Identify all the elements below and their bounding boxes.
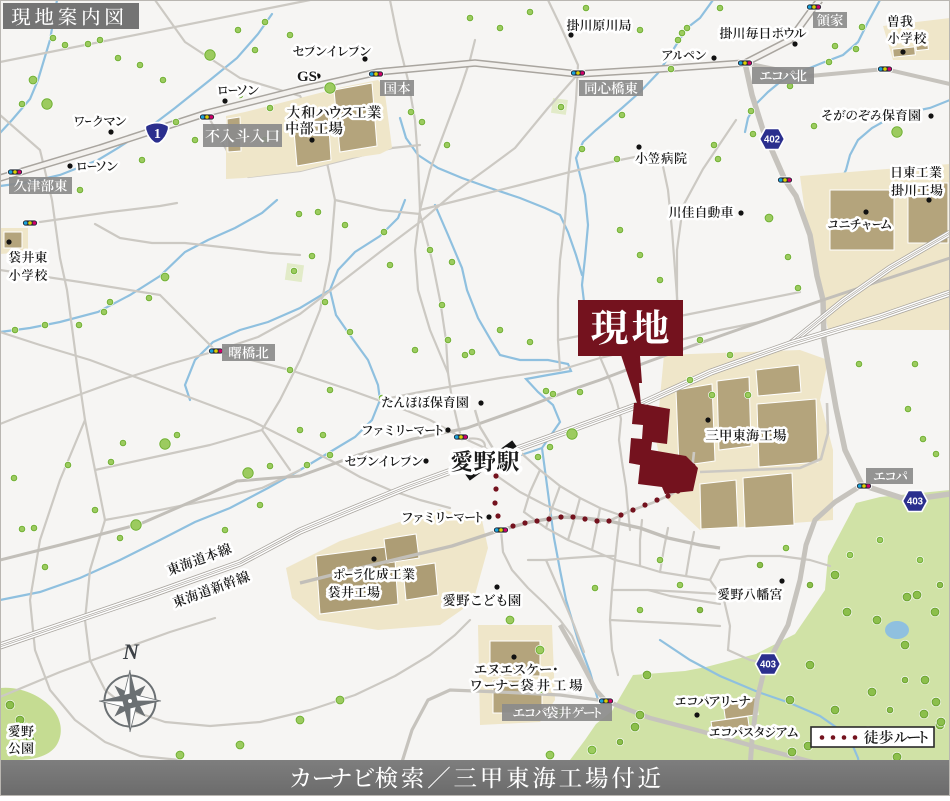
svg-text:N: N [122, 639, 140, 664]
svg-text:1: 1 [154, 127, 161, 142]
svg-text:403: 403 [760, 659, 776, 670]
svg-text:GS: GS [297, 69, 317, 85]
svg-text:402: 402 [764, 134, 780, 145]
svg-text:403: 403 [907, 496, 923, 507]
